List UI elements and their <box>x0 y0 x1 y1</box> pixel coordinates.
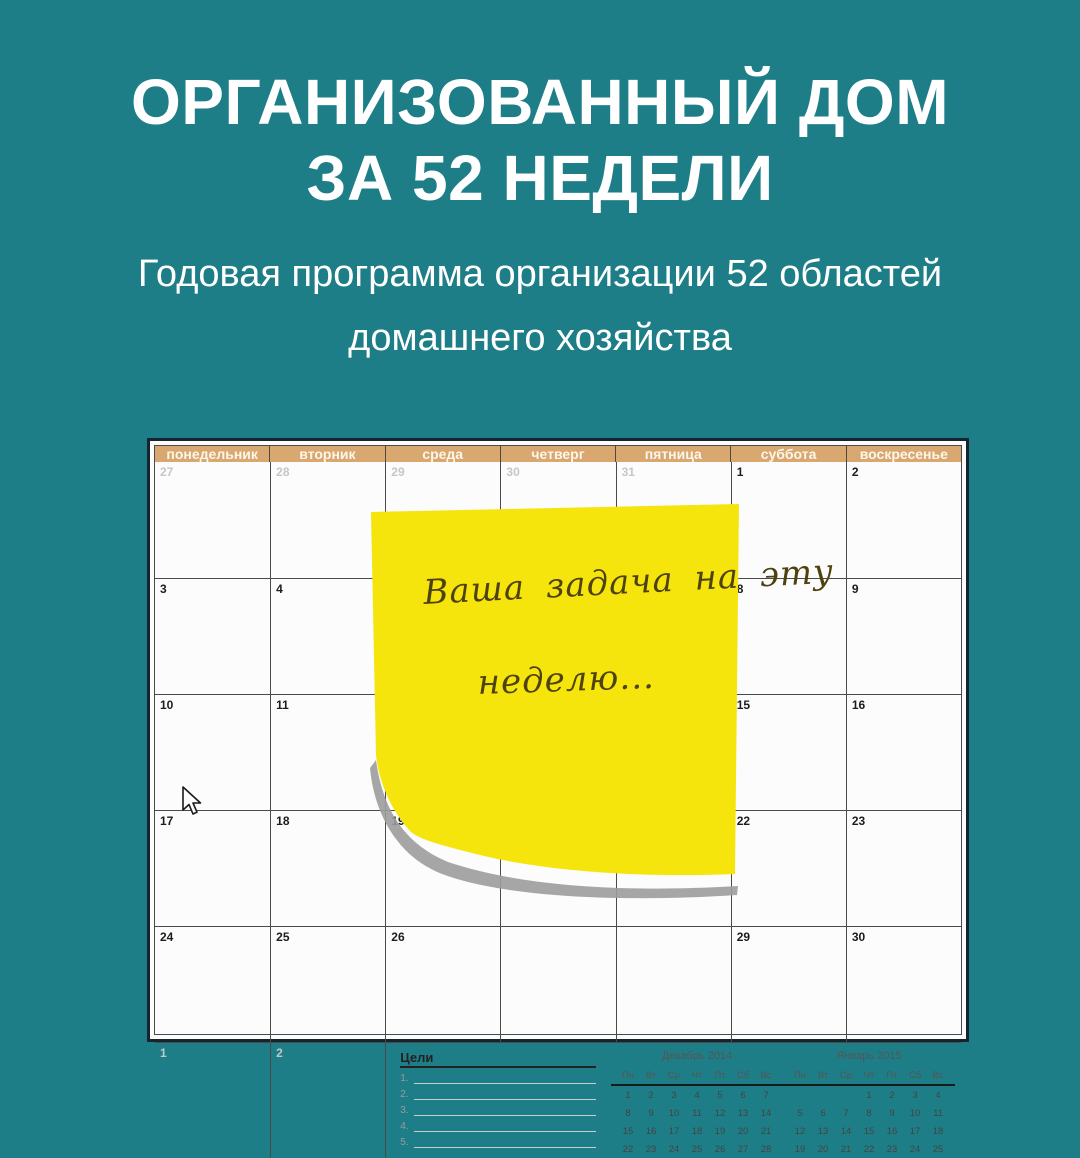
date-cell <box>616 578 731 694</box>
mini-calendar-days: ПнВтСрЧтПтСбВс <box>783 1065 955 1086</box>
date-cell: 4 <box>270 578 385 694</box>
date-cell: 24 <box>155 926 270 1042</box>
date-cell: 25 <box>270 926 385 1042</box>
date-cell: 29 <box>731 926 846 1042</box>
date-cell <box>500 926 615 1042</box>
goal-line: 2. <box>400 1084 596 1100</box>
date-cell <box>385 578 500 694</box>
date-cell: 27 <box>155 462 270 578</box>
day-header-cell: четверг <box>500 446 615 462</box>
mini-calendar-week: 567891011 <box>783 1104 955 1122</box>
mini-calendar-weeks: 1234567891011121314151617181920212223242… <box>783 1086 955 1158</box>
date-cell: 22 <box>731 810 846 926</box>
date-cell: 16 <box>846 694 961 810</box>
subtitle-line1: Годовая программа организации 52 областе… <box>0 242 1080 306</box>
date-cell: 29 <box>385 462 500 578</box>
goal-line: 4. <box>400 1116 596 1132</box>
calendar-grid: Цели 1.2.3.4.5. Декабрь 2014 ПнВтСрЧтПтС… <box>155 462 961 1158</box>
date-cell: 2 <box>846 462 961 578</box>
page-title-line1: ОРГАНИЗОВАННЫЙ ДОМ <box>0 64 1080 140</box>
mini-calendar-week: 15161718192021 <box>611 1122 783 1140</box>
date-cell: 9 <box>846 578 961 694</box>
date-cell <box>500 810 615 926</box>
day-header-cell: пятница <box>615 446 730 462</box>
date-cell: 18 <box>270 810 385 926</box>
date-cell: 30 <box>500 462 615 578</box>
mini-calendar-week: 891011121314 <box>611 1104 783 1122</box>
date-cell: 15 <box>731 694 846 810</box>
date-cell: 2 <box>270 1042 385 1158</box>
goals-section: Цели 1.2.3.4.5. <box>400 1050 605 1158</box>
mini-calendar-title: Январь 2015 <box>783 1050 955 1062</box>
day-header-cell: среда <box>385 446 500 462</box>
page-title-line2: ЗА 52 НЕДЕЛИ <box>0 140 1080 216</box>
date-cell: 17 <box>155 810 270 926</box>
date-cell: 31 <box>616 462 731 578</box>
mini-calendar-week: 22232425262728 <box>611 1140 783 1158</box>
mini-calendar-week: 1234567 <box>611 1086 783 1104</box>
date-cell <box>616 694 731 810</box>
mini-calendar-days: ПнВтСрЧтПтСбВс <box>611 1065 783 1086</box>
mini-calendar-week: 12131415161718 <box>783 1122 955 1140</box>
day-header-cell: воскресенье <box>846 446 961 462</box>
date-cell: 23 <box>846 810 961 926</box>
date-cell: 1 <box>731 462 846 578</box>
mini-calendar: Декабрь 2014 ПнВтСрЧтПтСбВс 123456789101… <box>611 1050 783 1158</box>
day-header-cell: понедельник <box>155 446 269 462</box>
date-cell: 30 <box>846 926 961 1042</box>
goal-line: 5. <box>400 1132 596 1148</box>
date-cell: 26 <box>385 926 500 1042</box>
date-cell <box>616 926 731 1042</box>
mini-calendar-week: 19202122232425 <box>783 1140 955 1158</box>
date-cell: 19 <box>385 810 500 926</box>
day-header-row: понедельниквторниксредачетвергпятницасуб… <box>155 446 961 462</box>
day-header-cell: вторник <box>269 446 384 462</box>
mini-calendar-weeks: 1234567891011121314151617181920212223242… <box>611 1086 783 1158</box>
date-cell <box>616 810 731 926</box>
goals-lines: 1.2.3.4.5. <box>400 1068 605 1148</box>
calendar-footer-panel: Цели 1.2.3.4.5. Декабрь 2014 ПнВтСрЧтПтС… <box>385 1042 961 1158</box>
calendar-sheet: понедельниквторниксредачетвергпятницасуб… <box>154 445 962 1035</box>
date-cell: 3 <box>155 578 270 694</box>
mini-calendars: Декабрь 2014 ПнВтСрЧтПтСбВс 123456789101… <box>605 1050 961 1158</box>
mini-calendar-title: Декабрь 2014 <box>611 1050 783 1062</box>
mini-calendar: Январь 2015 ПнВтСрЧтПтСбВс 1234567891011… <box>783 1050 955 1158</box>
date-cell: 8 <box>731 578 846 694</box>
date-cell: 28 <box>270 462 385 578</box>
calendar-image: понедельниквторниксредачетвергпятницасуб… <box>147 438 969 1042</box>
date-cell <box>500 578 615 694</box>
mini-calendar-week: 1234 <box>783 1086 955 1104</box>
subtitle-line2: домашнего хозяйства <box>0 306 1080 370</box>
date-cell: 10 <box>155 694 270 810</box>
date-cell <box>385 694 500 810</box>
goal-line: 3. <box>400 1100 596 1116</box>
goal-line: 1. <box>400 1068 596 1084</box>
date-cell: 1 <box>155 1042 270 1158</box>
slide-titles: ОРГАНИЗОВАННЫЙ ДОМ ЗА 52 НЕДЕЛИ Годовая … <box>0 64 1080 370</box>
day-header-cell: суббота <box>730 446 845 462</box>
date-cell <box>500 694 615 810</box>
goals-label: Цели <box>400 1050 596 1068</box>
date-cell: 11 <box>270 694 385 810</box>
